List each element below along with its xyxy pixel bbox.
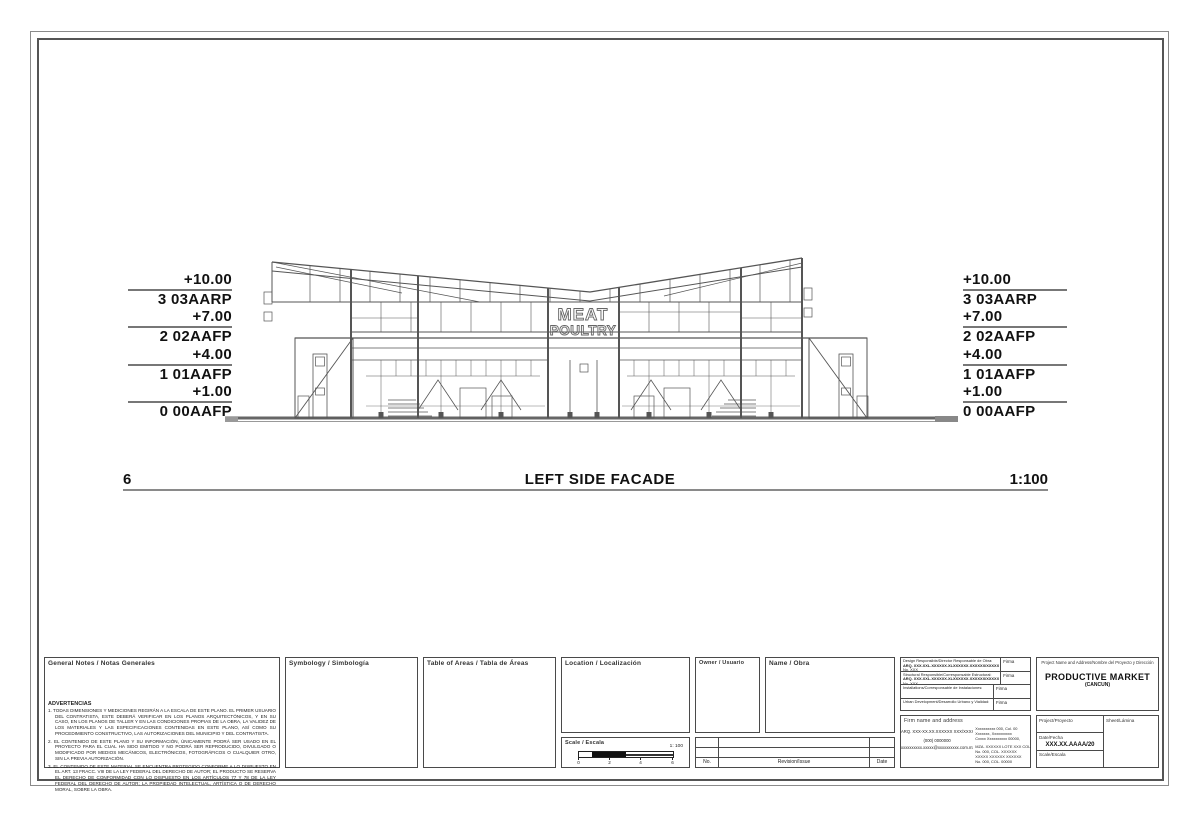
- project-name: PRODUCTIVE MARKET: [1037, 672, 1158, 682]
- signatures-table: Design Responsible/Director Responsable …: [900, 657, 1031, 711]
- owner-box: Owner / Usuario: [695, 657, 760, 733]
- level-marker-right-7: +7.00 2 02AAFP: [963, 308, 1067, 345]
- areas-box: Table of Areas / Tabla de Áreas: [423, 657, 556, 768]
- signature-label: Firma: [993, 699, 1030, 712]
- revision-row-empty: [696, 738, 894, 748]
- scale-tick-label: 0: [574, 760, 584, 765]
- level-name: 3 03AARP: [128, 292, 232, 308]
- note-item: 2. EL CONTENIDO DE ESTE PLANO Y SU INFOR…: [48, 739, 276, 762]
- firm-address-line: No. 000, COL. 00000: [975, 759, 1031, 764]
- project-subname: (CANCUN): [1037, 682, 1158, 688]
- note-item: 1. TODAS DIMENSIONES Y MEDICIONES REGIRÁ…: [48, 708, 276, 737]
- scale-bar-segment: [626, 754, 673, 756]
- signature-row: Structural Responsible/Corresponsable Es…: [901, 672, 1030, 686]
- signature-row: Urban Development/Desarrollo Urbano y Vi…: [901, 699, 1030, 712]
- note-item: 3. EL CONTENIDO DE ESTE MATERIAL SE ENCU…: [48, 764, 276, 793]
- firm-email: xxxxxxxxxx.xxxxx@xxxxxxxxxx.com.mx: [901, 745, 973, 751]
- areas-header: Table of Areas / Tabla de Áreas: [424, 658, 555, 667]
- level-marker-left-4: +4.00 1 01AAFP: [128, 346, 232, 383]
- scale-ratio: 1: 100: [670, 744, 683, 749]
- sheet-cell: Sheet/Lámina: [1104, 716, 1158, 767]
- sheet-label: Sheet/Lámina: [1104, 716, 1158, 723]
- level-name: 0 00AAFP: [963, 404, 1067, 420]
- facade-elevation-drawing: MEAT POULTRY: [140, 240, 1060, 445]
- revision-header-row: No. Revision/Issue Date: [696, 758, 894, 767]
- view-title-rule: [123, 489, 1048, 491]
- revision-cell: [719, 738, 869, 747]
- revision-cell: [719, 748, 869, 757]
- signature-label: Firma: [993, 685, 1030, 698]
- signature-label: Firma: [1000, 658, 1030, 671]
- revision-table: No. Revision/Issue Date: [695, 737, 895, 768]
- level-marker-left-10: +10.00 3 03AARP: [128, 271, 232, 308]
- level-name: 3 03AARP: [963, 292, 1067, 308]
- project-info-grid: Project/Proyecto Date/Fecha XXX.XX.AAAA/…: [1036, 715, 1159, 768]
- location-header: Location / Localización: [562, 658, 689, 667]
- scale-box: Scale / Escala 1: 100 0 2 4 6: [561, 737, 690, 768]
- level-name: 2 02AAFP: [128, 329, 232, 345]
- project-cell: Project/Proyecto: [1037, 716, 1103, 733]
- view-scale: 1:100: [948, 471, 1048, 488]
- level-name: 2 02AAFP: [963, 329, 1067, 345]
- revision-col-date: Date: [869, 758, 894, 767]
- revision-cell: [696, 748, 719, 757]
- general-notes-box: General Notes / Notas Generales ADVERTEN…: [44, 657, 280, 768]
- symbology-header: Symbology / Simbología: [286, 658, 417, 667]
- signature-row: Installations/Corresponsable de Instalac…: [901, 685, 1030, 699]
- elevation-value: +10.00: [128, 271, 232, 288]
- level-marker-left-1: +1.00 0 00AAFP: [128, 383, 232, 420]
- facade-sign-poultry: POULTRY: [550, 323, 617, 338]
- level-marker-left-7: +7.00 2 02AAFP: [128, 308, 232, 345]
- name-header: Name / Obra: [766, 658, 894, 667]
- scale-tick-label: 6: [668, 760, 678, 765]
- date-label: Date/Fecha: [1037, 733, 1103, 740]
- graphic-scale-bar: [578, 751, 674, 758]
- level-marker-right-1: +1.00 0 00AAFP: [963, 383, 1067, 420]
- level-marker-right-10: +10.00 3 03AARP: [963, 271, 1067, 308]
- warnings-header: ADVERTENCIAS: [48, 701, 276, 707]
- level-name: 1 01AAFP: [963, 367, 1067, 383]
- firm-name: ARQ. XXX-XX.XX.XXXXXX XXX/XXXXX: [901, 729, 973, 735]
- scale-cell: Scale/Escala: [1037, 751, 1103, 767]
- facade-sign-meat: MEAT: [558, 305, 609, 324]
- elevation-value: +7.00: [963, 308, 1067, 325]
- signature-label: Firma: [1000, 672, 1030, 685]
- signature-role: Installations/Corresponsable de Instalac…: [903, 686, 992, 691]
- scale-tick-label: 2: [605, 760, 615, 765]
- date-cell: Date/Fecha XXX.XX.AAAA/20: [1037, 733, 1103, 750]
- revision-cell: [869, 748, 894, 757]
- name-box: Name / Obra: [765, 657, 895, 733]
- elevation-value: +1.00: [128, 383, 232, 400]
- firm-header: Firm name and address: [901, 716, 1030, 724]
- level-name: 0 00AAFP: [128, 404, 232, 420]
- project-name-box: Project Name and Address/Nombre del Proy…: [1036, 657, 1159, 711]
- scale-tick-label: 4: [636, 760, 646, 765]
- symbology-box: Symbology / Simbología: [285, 657, 418, 768]
- firm-box: Firm name and address ARQ. XXX-XX.XX.XXX…: [900, 715, 1031, 768]
- general-notes-header: General Notes / Notas Generales: [45, 658, 279, 667]
- scale-label: Scale/Escala: [1037, 751, 1103, 758]
- signature-row: Design Responsible/Director Responsable …: [901, 658, 1030, 672]
- level-marker-right-4: +4.00 1 01AAFP: [963, 346, 1067, 383]
- elevation-value: +4.00: [128, 346, 232, 363]
- date-value: XXX.XX.AAAA/20: [1037, 742, 1103, 748]
- elevation-value: +1.00: [963, 383, 1067, 400]
- revision-cell: [696, 738, 719, 747]
- revision-row-empty: [696, 748, 894, 758]
- signature-role: Urban Development/Desarrollo Urbano y Vi…: [903, 700, 992, 705]
- owner-header: Owner / Usuario: [696, 658, 759, 666]
- firm-address-line: Cxxxx Xxxxxxxxxx 00000,: [975, 736, 1031, 741]
- revision-cell: [869, 738, 894, 747]
- elevation-value: +7.00: [128, 308, 232, 325]
- elevation-value: +10.00: [963, 271, 1067, 288]
- level-name: 1 01AAFP: [128, 367, 232, 383]
- project-header: Project Name and Address/Nombre del Proy…: [1037, 658, 1158, 665]
- location-box: Location / Localización: [561, 657, 690, 733]
- revision-col-revision: Revision/Issue: [719, 758, 869, 767]
- project-label: Project/Proyecto: [1037, 716, 1103, 723]
- revision-col-no: No.: [696, 758, 719, 767]
- elevation-value: +4.00: [963, 346, 1067, 363]
